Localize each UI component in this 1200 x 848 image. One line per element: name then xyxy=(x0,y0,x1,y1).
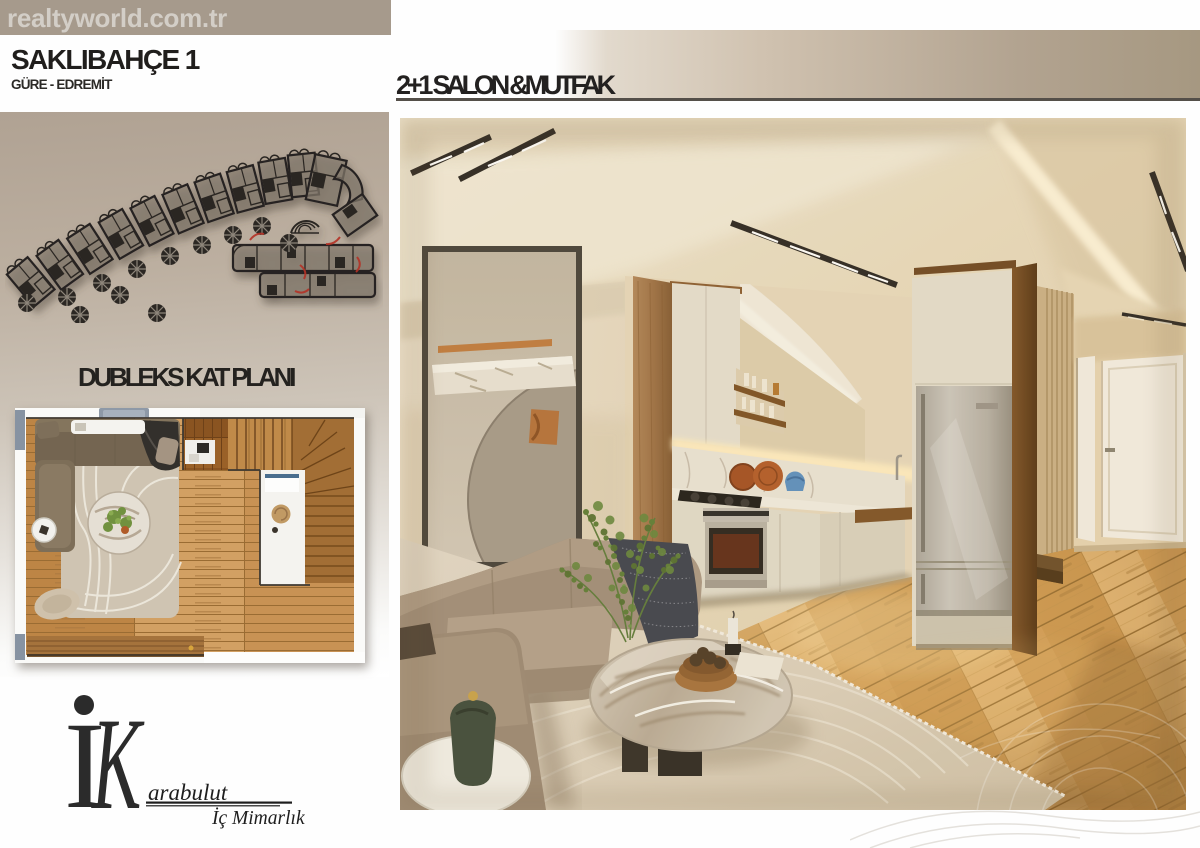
svg-text:K: K xyxy=(91,692,145,838)
svg-text:arabulut: arabulut xyxy=(148,780,228,805)
svg-text:İç Mimarlık: İç Mimarlık xyxy=(211,808,305,829)
